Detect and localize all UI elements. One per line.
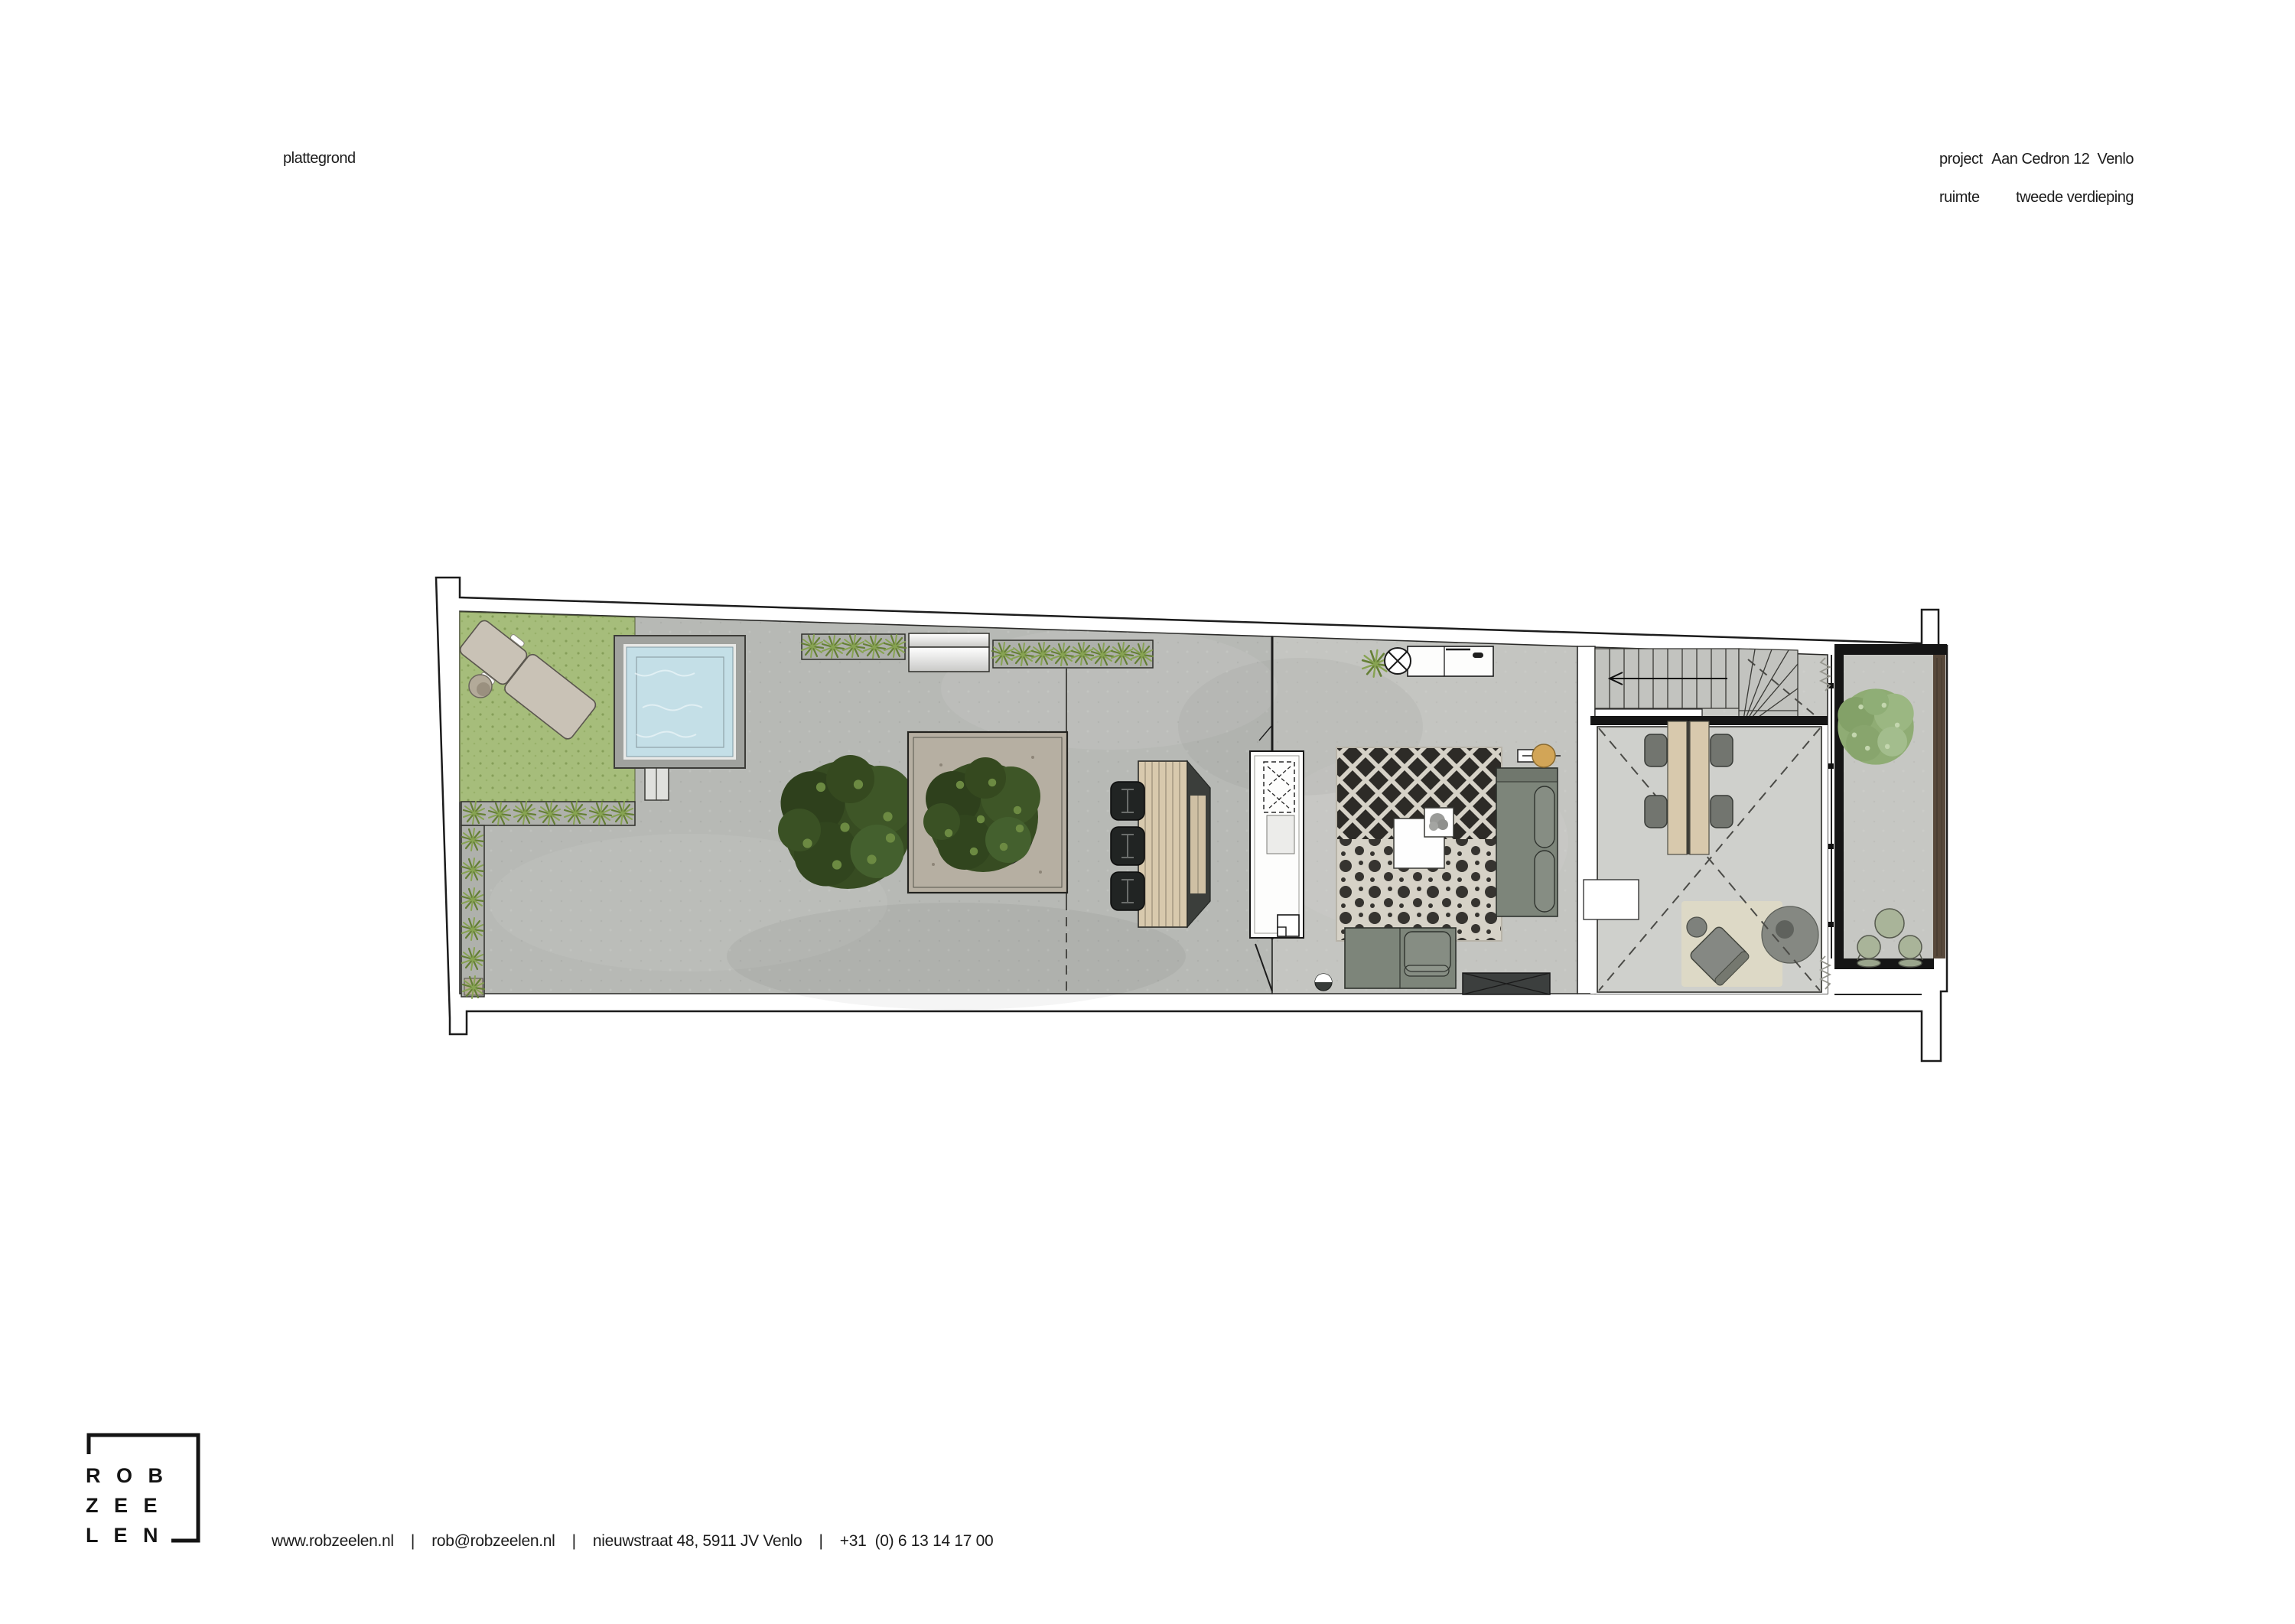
top-planter-right (992, 640, 1153, 668)
outdoor-dining-table (1138, 761, 1187, 927)
kitchen-island (1250, 751, 1304, 938)
dining-chair (1711, 796, 1733, 828)
dining-table (1668, 721, 1709, 854)
top-planter-left (802, 634, 906, 659)
outdoor-chair (1111, 827, 1144, 865)
outdoor-bench (1187, 761, 1210, 927)
pouf (1762, 906, 1818, 963)
vide-cabinet (1584, 880, 1639, 919)
dining-chair (1645, 734, 1667, 766)
dining-chair (1711, 734, 1733, 766)
planter-column-left (461, 825, 484, 998)
logo-row: L E N (86, 1524, 162, 1547)
vide-room (1584, 716, 1828, 994)
tree-1 (778, 755, 915, 889)
balcony-tree (1838, 688, 1913, 764)
lounge-side-table (1687, 917, 1707, 937)
plan-drawing: R O B Z E E L E N (0, 0, 2295, 1624)
side-coffee-table (1424, 808, 1453, 837)
garden-bench (909, 633, 989, 672)
outdoor-chair (1111, 782, 1144, 820)
sofa-chaise (1345, 928, 1456, 988)
balcony (1834, 644, 1947, 994)
wall-light (1315, 974, 1332, 991)
planter-row-bottom (461, 802, 635, 825)
side-table (469, 675, 492, 698)
tv-sideboard (1463, 973, 1550, 994)
dining-chair (1645, 796, 1667, 828)
sofa (1496, 768, 1558, 916)
outdoor-chair (1111, 872, 1144, 910)
kitchenette-sink-icon (1385, 648, 1411, 674)
tree-2 (923, 757, 1040, 872)
logo-row: R O B (86, 1464, 167, 1487)
balcony-wood-wall (1933, 655, 1945, 958)
island-sink (1278, 915, 1299, 936)
logo: R O B Z E E L E N (86, 1435, 198, 1547)
outdoor-chairs (1111, 782, 1144, 910)
logo-row: Z E E (86, 1494, 161, 1517)
